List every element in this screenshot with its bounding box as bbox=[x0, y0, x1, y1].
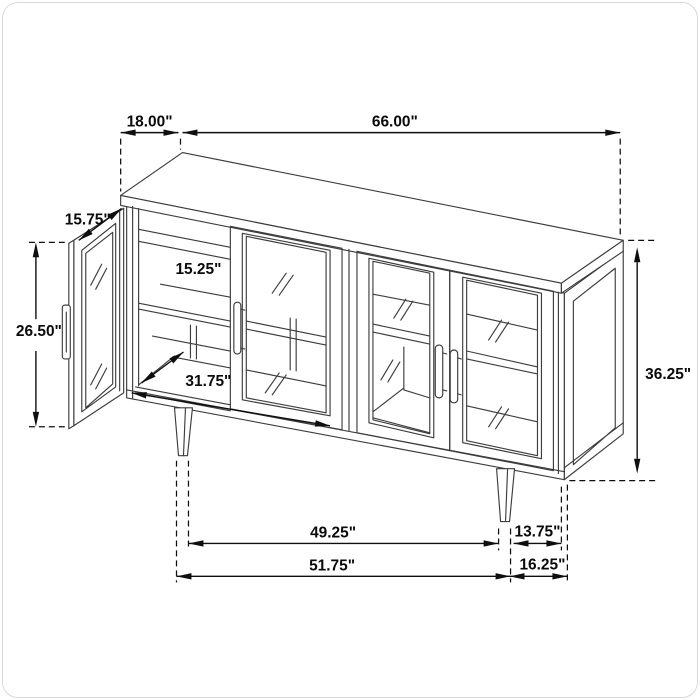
door-4-handle bbox=[450, 350, 457, 403]
open-glass-door-1 bbox=[62, 208, 123, 428]
dim-leg-to-back-depth-label: 13.75" bbox=[514, 523, 560, 540]
dim-door-height: 26.50" bbox=[16, 242, 67, 426]
dim-front-leg-span-outer: 51.75" bbox=[177, 557, 511, 579]
dim-interior-width-label: 31.75" bbox=[185, 373, 231, 390]
dim-overall-width-label: 66.00" bbox=[372, 114, 418, 131]
dim-shelf-depth-label: 15.25" bbox=[175, 261, 221, 278]
cabinet-drawing bbox=[62, 153, 623, 522]
dim-shelf-depth: 15.25" bbox=[175, 261, 221, 278]
dim-door-width-label: 15.75" bbox=[65, 211, 111, 228]
dim-base-depth-label: 16.25" bbox=[519, 556, 565, 573]
dim-top-depth-label: 18.00" bbox=[127, 114, 173, 131]
door-2-handle bbox=[234, 302, 241, 354]
diagram-frame: 18.00" 66.00" 15.75" 26.50" 15.25" bbox=[2, 2, 698, 698]
dim-front-leg-span-outer-label: 51.75" bbox=[309, 557, 355, 574]
dimension-diagram: 18.00" 66.00" 15.75" 26.50" 15.25" bbox=[3, 3, 698, 698]
dim-overall-height-label: 36.25" bbox=[645, 366, 691, 383]
door-3-handle bbox=[435, 345, 442, 398]
dim-door-height-label: 26.50" bbox=[16, 323, 62, 340]
dim-front-leg-span-inner-label: 49.25" bbox=[310, 524, 356, 541]
